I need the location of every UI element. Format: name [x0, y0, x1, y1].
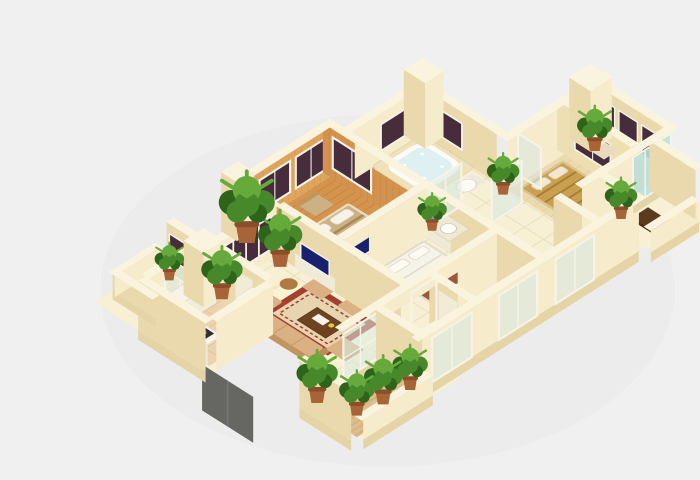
- floorplan-3d-scene: [0, 0, 700, 480]
- floorplan-render-canvas: [0, 0, 700, 480]
- pillar-chimney: [404, 58, 444, 149]
- building: [95, 8, 700, 467]
